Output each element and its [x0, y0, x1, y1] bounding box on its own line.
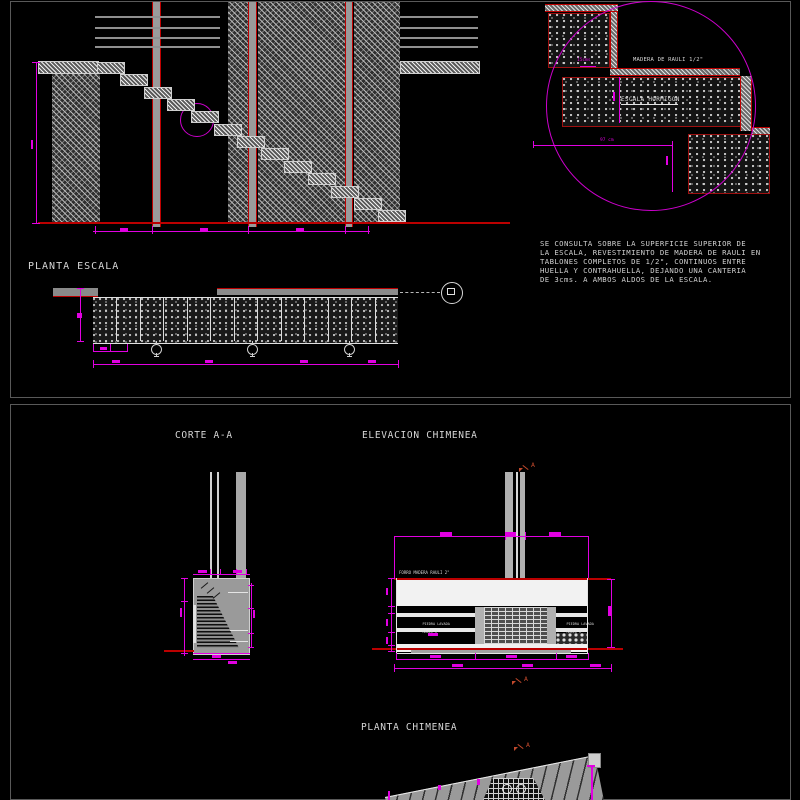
- dim-mark: [198, 570, 207, 573]
- plan-tread-line: [351, 298, 352, 341]
- white-line: [230, 641, 248, 642]
- white-line: [228, 592, 248, 593]
- dim-mark: [345, 226, 346, 234]
- railing-line: [400, 46, 478, 48]
- corte-flue-bar: [236, 472, 246, 578]
- dim-mark: [452, 664, 463, 667]
- plan-tread-line: [116, 298, 117, 341]
- dim-mark: [388, 632, 395, 633]
- dim-mark: [672, 147, 673, 192]
- dim-mark: [588, 536, 589, 578]
- dim-mark: [549, 532, 561, 536]
- plan-grate-circle: [502, 784, 512, 794]
- dim-mark: [251, 583, 252, 648]
- section-wall-mid1: [228, 2, 248, 222]
- dim-mark: [388, 645, 395, 646]
- dim-mark: [180, 608, 182, 617]
- dim-mark: [608, 606, 611, 616]
- dim-mark: [388, 791, 390, 800]
- marker-arrowhead: [519, 468, 523, 472]
- dim-mark: [440, 532, 452, 536]
- corte-notch: [193, 605, 196, 643]
- dim-mark: [248, 226, 249, 234]
- dim-mark: [253, 610, 255, 618]
- stair-step: [191, 111, 219, 123]
- dim-mark: [394, 536, 588, 537]
- stair-step: [167, 99, 195, 111]
- dim-mark: [525, 532, 526, 540]
- dim-mark: [32, 223, 40, 224]
- dim-mark: [300, 360, 308, 363]
- dim-mark: [368, 226, 369, 234]
- stair-step: [378, 210, 406, 222]
- dim-mark: [506, 655, 517, 658]
- marker-letter: A: [526, 741, 530, 749]
- dim-mark: [591, 767, 593, 800]
- stair-step: [144, 87, 172, 99]
- red-line: [217, 288, 398, 289]
- plan-tread-line: [257, 298, 258, 341]
- dim-mark: [184, 578, 185, 656]
- red-line: [372, 648, 623, 650]
- stair-step: [237, 136, 265, 148]
- red-line: [53, 296, 98, 297]
- white-line: [396, 578, 397, 654]
- dim-mark: [388, 578, 395, 579]
- detail-dim-riser: 15cms: [577, 58, 591, 63]
- dim-mark: [438, 785, 441, 790]
- detail-leader-line: [400, 292, 440, 293]
- dim-mark: [212, 655, 221, 658]
- dim-mark: [607, 579, 615, 580]
- dim-mark: [181, 653, 188, 654]
- dim-mark: [248, 585, 254, 586]
- dim-mark: [613, 92, 615, 101]
- axis-marker-tick: [347, 356, 352, 357]
- elev-pillar-left: [475, 607, 484, 648]
- section-post-2: [248, 2, 257, 227]
- stair-step: [284, 161, 312, 173]
- dim-mark: [112, 360, 120, 363]
- elev-pillar-right: [547, 607, 556, 648]
- plan-tread-line: [375, 298, 376, 341]
- plan-tread-line: [304, 298, 305, 341]
- dim-mark: [181, 601, 188, 602]
- plan-wall-bar-left: [53, 288, 98, 296]
- railing-line: [95, 46, 220, 48]
- dim-mark: [220, 569, 221, 575]
- axis-marker-stem: [156, 341, 157, 345]
- landing-slab-left: [38, 61, 99, 74]
- dim-mark: [619, 77, 620, 123]
- dim-mark: [430, 655, 441, 658]
- label-line: PIEDRA LAVADA: [422, 622, 449, 626]
- dim-mark: [566, 655, 577, 658]
- elev-flue-bar: [520, 472, 525, 578]
- dim-mark: [533, 141, 534, 148]
- dim-mark: [100, 347, 107, 350]
- dim-mark: [77, 341, 84, 342]
- corte-flue-pipe-line: [210, 472, 212, 578]
- dim-mark: [77, 313, 82, 318]
- dim-mark: [556, 653, 557, 660]
- plan-tread-line: [234, 298, 235, 341]
- elev-grille: [484, 607, 547, 648]
- dim-mark: [607, 647, 615, 648]
- stair-step: [261, 148, 289, 160]
- elev-upper-band: [397, 580, 587, 606]
- dim-mark: [666, 156, 668, 165]
- railing-line: [95, 37, 220, 39]
- marker-letter: A: [531, 461, 535, 469]
- dim-mark: [580, 66, 596, 67]
- section-post-1: [152, 2, 161, 227]
- dim-mark: [228, 661, 237, 664]
- dim-mark: [32, 62, 40, 63]
- dim-mark: [368, 360, 376, 363]
- section-wall-left: [52, 73, 100, 224]
- detail-concrete-label: ESCALA HORMIGON: [621, 96, 680, 103]
- dim-mark: [93, 364, 398, 365]
- elev-top-material-label: FORRO MADERA RAULI 2": [399, 571, 450, 576]
- dim-mark: [506, 532, 516, 536]
- corte-flue-pipe-line: [217, 472, 219, 578]
- stair-step: [214, 124, 242, 136]
- axis-marker-tick: [154, 356, 159, 357]
- dim-mark: [388, 606, 395, 607]
- plan-grate-circle: [516, 784, 526, 794]
- dim-mark: [181, 578, 188, 579]
- elev-flue-bar: [505, 472, 513, 578]
- dim-mark: [248, 633, 254, 634]
- dim-mark: [233, 570, 242, 573]
- marker-arrowhead: [514, 747, 518, 751]
- elev-right-band: [556, 613, 587, 617]
- plan-tread-line: [140, 298, 141, 341]
- dim-mark: [193, 653, 250, 654]
- railing-line: [400, 37, 478, 39]
- red-line: [38, 222, 510, 224]
- dim-mark: [36, 62, 37, 224]
- detail-dim-tread: 97 cm: [600, 138, 614, 143]
- dim-mark: [120, 228, 128, 231]
- marker-arrowhead: [512, 681, 516, 685]
- detail-marker-square: [447, 288, 455, 295]
- dim-mark: [248, 647, 254, 648]
- plan-tread-line: [187, 298, 188, 341]
- dim-mark: [533, 145, 673, 146]
- railing-line: [400, 27, 478, 29]
- dim-mark: [588, 653, 589, 660]
- detail-wood-label: MADERA DE RAULI 1/2": [633, 57, 703, 63]
- dim-mark: [587, 765, 595, 767]
- dim-mark: [394, 664, 395, 672]
- dim-mark: [475, 653, 476, 660]
- cad-canvas: MADERA DE RAULI 1/2" ESCALA HORMIGON 15c…: [0, 0, 800, 800]
- corte-title: CORTE A-A: [175, 430, 233, 441]
- stair-step: [308, 173, 336, 185]
- dim-mark: [152, 226, 153, 234]
- detail-circle: [546, 1, 756, 211]
- dim-mark: [394, 668, 611, 669]
- dim-mark: [93, 360, 94, 368]
- dim-mark: [127, 344, 128, 352]
- dim-mark: [611, 664, 612, 672]
- plan-stair-band: [93, 297, 398, 344]
- dim-mark: [248, 608, 254, 609]
- plan-tread-line: [328, 298, 329, 341]
- dim-mark: [391, 578, 392, 652]
- dim-mark: [205, 360, 213, 363]
- elev-left-band: [397, 613, 475, 617]
- dim-mark: [386, 588, 388, 595]
- railing-line: [400, 16, 478, 18]
- dim-mark: [388, 613, 395, 614]
- marker-letter: A: [524, 675, 528, 683]
- white-line: [230, 630, 248, 631]
- red-line: [394, 578, 611, 580]
- dim-mark: [396, 659, 588, 660]
- plan-tread-line: [163, 298, 164, 341]
- dim-mark: [611, 579, 612, 648]
- red-line: [164, 650, 194, 652]
- dim-mark: [93, 351, 127, 352]
- railing-line: [95, 16, 220, 18]
- elev-flue-pipe-line: [516, 472, 518, 578]
- dim-mark: [93, 231, 370, 232]
- stair-step: [331, 186, 359, 198]
- dim-mark: [296, 228, 304, 231]
- section-wall-mid3: [354, 2, 400, 222]
- dim-mark: [386, 619, 388, 626]
- landing-slab-right: [400, 61, 480, 74]
- dim-mark: [77, 288, 84, 289]
- dim-mark: [477, 779, 480, 785]
- dim-mark: [193, 574, 250, 575]
- axis-marker-stem: [349, 341, 350, 345]
- white-line: [396, 653, 588, 654]
- plan-tread-line: [210, 298, 211, 341]
- axis-marker-tick: [250, 356, 255, 357]
- stair-step: [354, 198, 382, 210]
- dim-mark: [386, 637, 388, 644]
- chimney-plan-title: PLANTA CHIMENEA: [361, 722, 457, 733]
- dim-mark: [428, 633, 438, 636]
- railing-line: [95, 27, 220, 29]
- dim-mark: [210, 569, 211, 575]
- axis-marker-stem: [252, 341, 253, 345]
- dim-mark: [396, 653, 397, 660]
- white-line: [621, 104, 678, 105]
- dim-mark: [398, 360, 399, 368]
- dim-mark: [394, 536, 395, 578]
- dim-mark: [193, 659, 250, 660]
- elevation-title: ELEVACION CHIMENEA: [362, 430, 478, 441]
- dim-mark: [200, 228, 208, 231]
- note-line: DE 3cms. A AMBOS ALDOS DE LA ESCALA.: [540, 275, 713, 285]
- dim-mark: [388, 651, 395, 652]
- stair-plan-title: PLANTA ESCALA: [28, 261, 119, 272]
- dim-mark: [522, 664, 533, 667]
- label-line: PIEDRA LAVADA: [566, 622, 593, 626]
- dim-mark: [590, 664, 601, 667]
- dim-mark: [95, 226, 96, 234]
- stair-step: [97, 62, 125, 74]
- plan-tread-line: [281, 298, 282, 341]
- white-line: [587, 578, 588, 654]
- dim-mark: [246, 569, 247, 575]
- stair-step: [120, 74, 148, 86]
- plan-wall-bar-right: [217, 289, 398, 295]
- dim-mark: [31, 140, 33, 149]
